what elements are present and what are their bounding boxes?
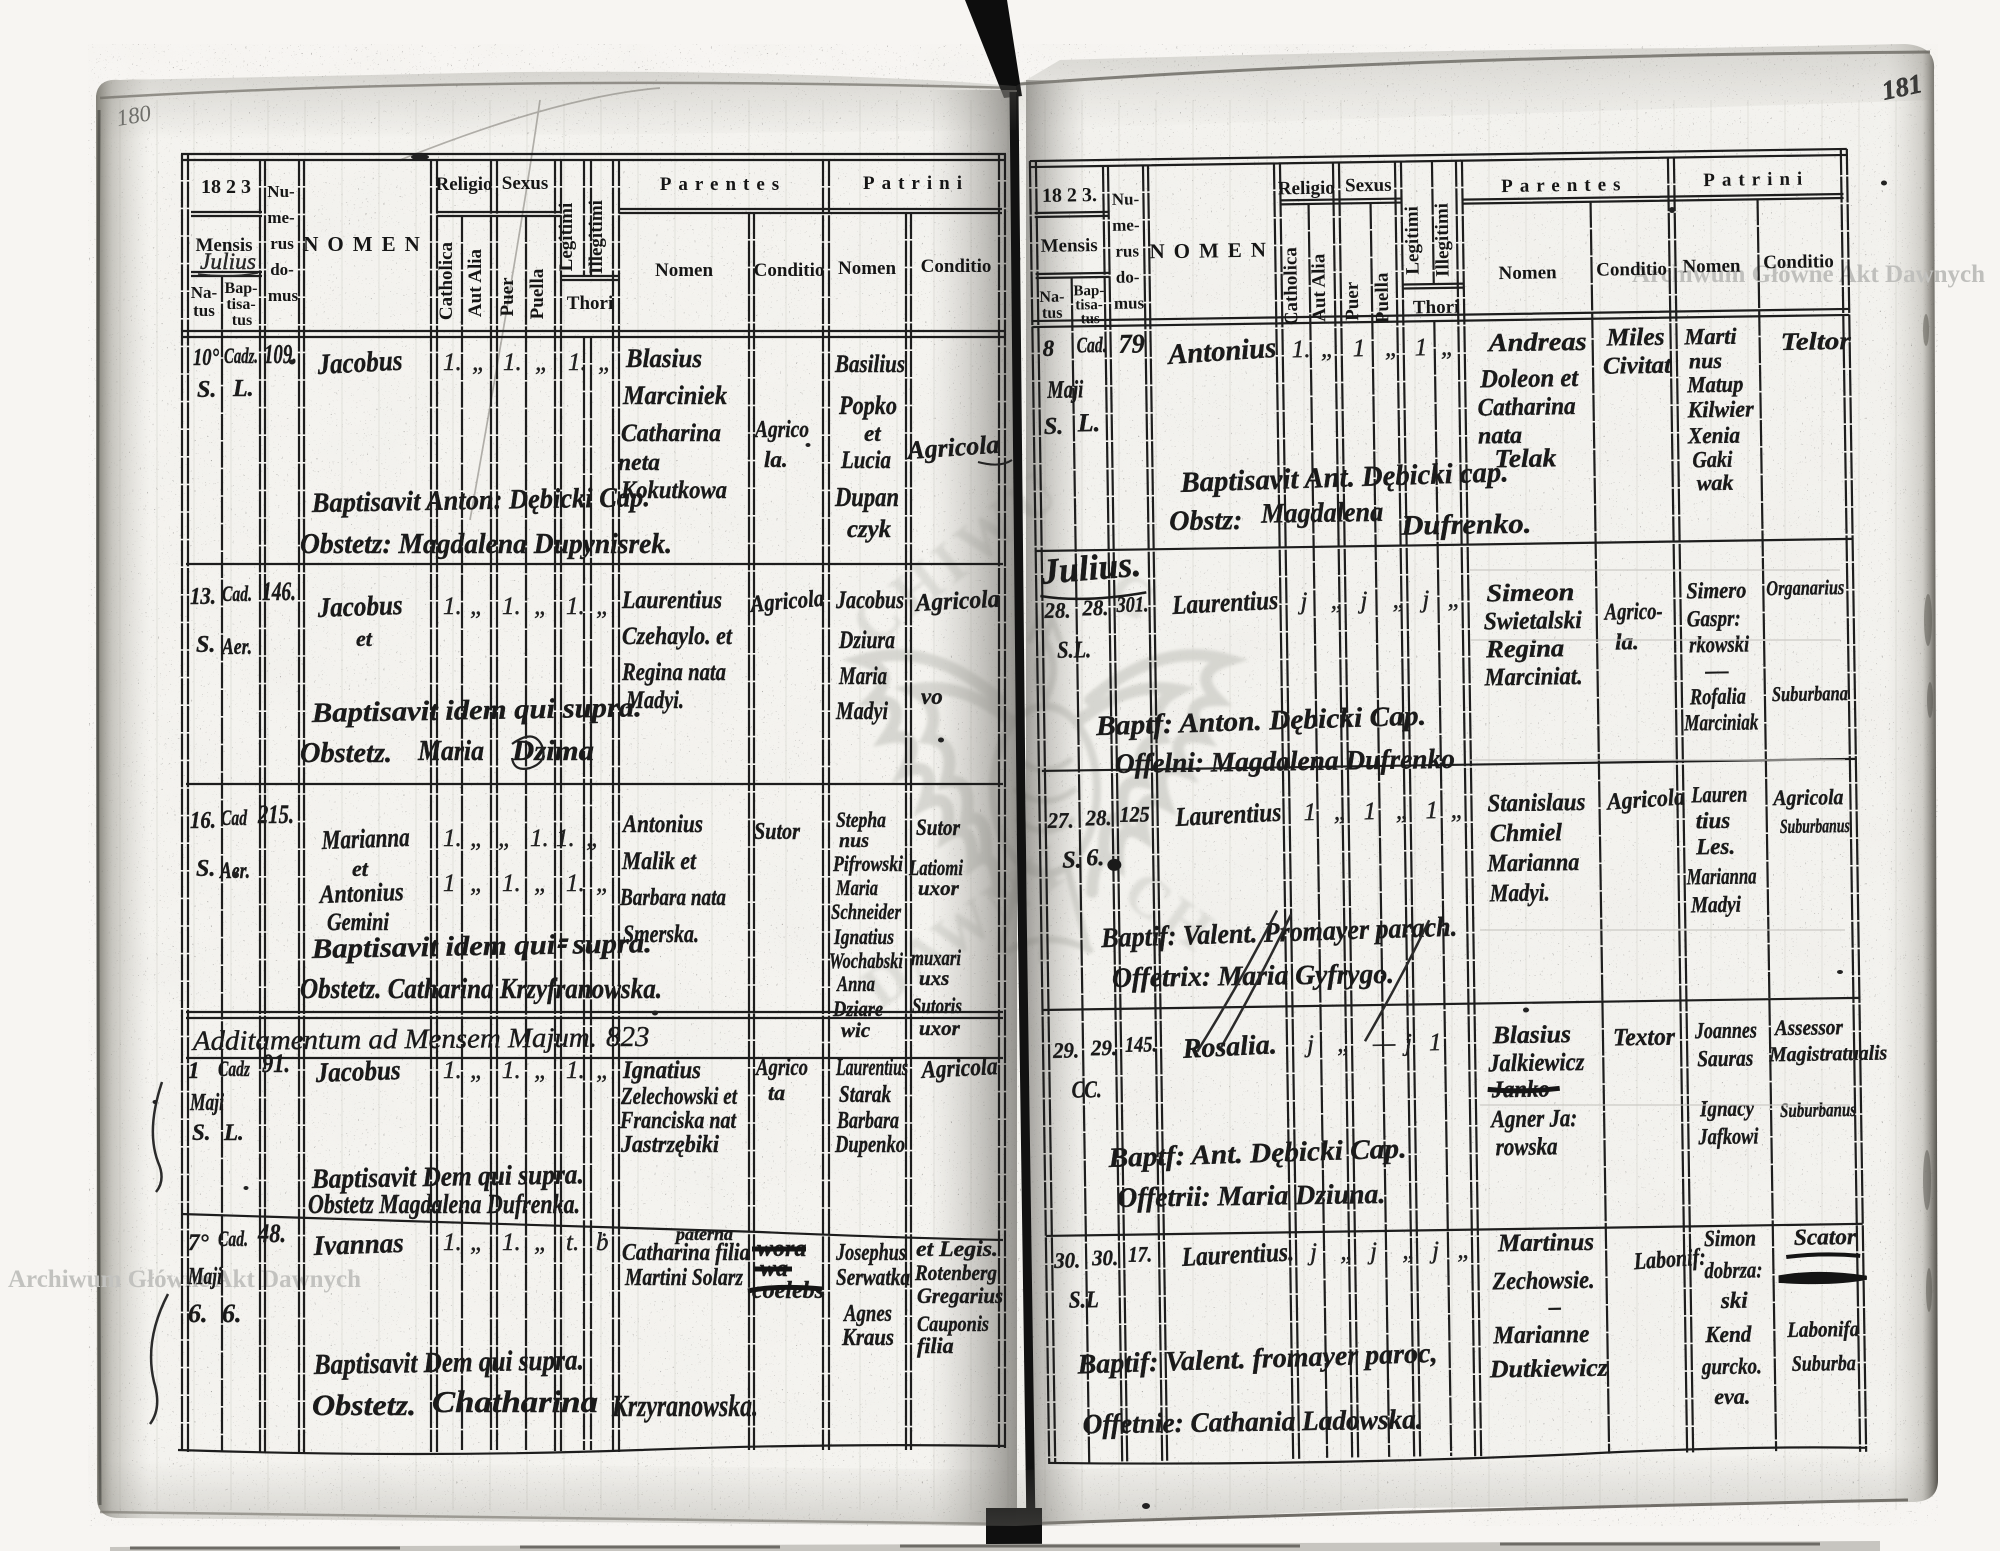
svg-text:Ignatius: Ignatius	[622, 1057, 701, 1084]
svg-text:S.L: S.L	[1069, 1287, 1099, 1313]
svg-text:Simeon: Simeon	[1486, 579, 1574, 607]
svg-text:„: „	[596, 593, 610, 620]
svg-text:301.: 301.	[1115, 591, 1148, 616]
svg-text:Nomen: Nomen	[1682, 256, 1741, 278]
svg-text:Kraus: Kraus	[841, 1325, 894, 1351]
svg-text:Jacobus: Jacobus	[835, 587, 904, 614]
svg-text:ḃ: ḃ	[596, 1229, 609, 1256]
svg-text:wic: wic	[841, 1018, 871, 1042]
svg-text:1.: 1.	[1292, 336, 1311, 363]
svg-text:Illegitimi: Illegitimi	[1432, 203, 1454, 277]
svg-text:Legitimi: Legitimi	[1402, 206, 1424, 275]
svg-text:rus: rus	[1115, 241, 1139, 260]
svg-text:Cad.: Cad.	[218, 1226, 248, 1251]
svg-text:vo: vo	[921, 684, 943, 709]
svg-text:Thori: Thori	[1413, 297, 1460, 319]
svg-text:„: „	[534, 870, 548, 897]
svg-text:S.: S.	[196, 632, 215, 658]
svg-text:Dufrenko.: Dufrenko.	[1400, 509, 1532, 542]
svg-text:„: „	[1385, 335, 1399, 362]
svg-text:79: 79	[1118, 328, 1145, 358]
svg-text:NOMEN: NOMEN	[1149, 237, 1275, 263]
svg-text:Kilwier: Kilwier	[1687, 396, 1755, 422]
svg-text:S.: S.	[1062, 847, 1082, 873]
svg-text:1.: 1.	[443, 1057, 462, 1084]
svg-text:Malik et: Malik et	[621, 848, 697, 875]
svg-text:Nomen: Nomen	[838, 258, 896, 279]
svg-text:Pifrowski: Pifrowski	[832, 851, 904, 876]
svg-text:L.: L.	[1077, 408, 1101, 437]
svg-text:Serwatka: Serwatka	[836, 1265, 910, 1291]
svg-text:neta: neta	[618, 450, 660, 476]
svg-text:tus: tus	[193, 301, 215, 320]
svg-text:Julius.: Julius.	[1038, 544, 1142, 592]
svg-text:Catharina: Catharina	[1477, 393, 1575, 421]
svg-text:Puer: Puer	[1342, 281, 1364, 321]
svg-text:„: „	[1333, 798, 1347, 825]
svg-text:Agnes: Agnes	[842, 1301, 892, 1327]
svg-text:tius: tius	[1696, 808, 1731, 834]
svg-text:48.: 48.	[257, 1219, 286, 1248]
svg-text:Ignatius: Ignatius	[833, 924, 894, 949]
svg-text:Cad.: Cad.	[1076, 332, 1106, 357]
svg-text:Joannes: Joannes	[1694, 1017, 1757, 1043]
svg-text:Kend: Kend	[1704, 1321, 1752, 1347]
svg-text:Doleon et: Doleon et	[1479, 363, 1579, 393]
svg-text:„: „	[1457, 1237, 1471, 1264]
svg-text:Gaspr:: Gaspr:	[1687, 606, 1741, 632]
svg-text:„: „	[470, 825, 484, 852]
svg-text:146.: 146.	[262, 577, 296, 606]
svg-text:nus: nus	[839, 830, 869, 852]
svg-text:Dupan: Dupan	[834, 482, 899, 512]
svg-text:„: „	[472, 349, 486, 376]
svg-text:la.: la.	[1615, 629, 1639, 654]
svg-text:Obstz:: Obstz:	[1169, 505, 1243, 537]
svg-text:S.: S.	[192, 1120, 211, 1145]
svg-text:Conditio: Conditio	[1763, 251, 1834, 273]
svg-text:Maji: Maji	[1046, 376, 1083, 404]
svg-text:16.: 16.	[190, 808, 216, 834]
svg-text:Obstetz: Magdalena Dupynisre: Obstetz: Magdalena Dupynisrek.	[300, 529, 672, 560]
svg-text:Laurentius: Laurentius	[1171, 585, 1279, 620]
svg-text:L.: L.	[232, 376, 254, 402]
svg-text:Sauras: Sauras	[1697, 1045, 1753, 1071]
svg-text:„: „	[1392, 587, 1406, 614]
svg-text:1.: 1.	[530, 825, 549, 852]
svg-text:1.: 1.	[566, 593, 585, 620]
svg-text:Catholica: Catholica	[436, 241, 457, 320]
svg-text:rkowski: rkowski	[1689, 631, 1750, 657]
svg-text:7°: 7°	[188, 1230, 210, 1255]
svg-text:nus: nus	[1689, 348, 1722, 373]
svg-text:filia: filia	[917, 1333, 954, 1358]
svg-text:Marciniek: Marciniek	[622, 381, 727, 410]
svg-text:Popko: Popko	[838, 391, 897, 420]
svg-text:Laurentius: Laurentius	[1174, 797, 1282, 832]
svg-text:Blasius: Blasius	[1492, 1021, 1571, 1049]
svg-text:Scator: Scator	[1794, 1224, 1857, 1250]
svg-text:1: 1	[1425, 797, 1438, 824]
svg-text:–: –	[1548, 1294, 1561, 1320]
svg-text:Nomen: Nomen	[1498, 262, 1557, 284]
svg-text:„: „	[1450, 797, 1464, 824]
svg-text:Marciniat.: Marciniat.	[1484, 663, 1583, 691]
svg-text:Na-: Na-	[191, 283, 218, 302]
svg-text:Agrico: Agrico	[753, 417, 809, 443]
svg-text:Regina nata: Regina nata	[621, 659, 726, 686]
svg-text:Ignacy: Ignacy	[1699, 1095, 1755, 1121]
svg-text:Baptisavit Dem qui supra.: Baptisavit Dem qui supra.	[313, 1344, 584, 1381]
svg-text:czyk: czyk	[847, 516, 891, 543]
svg-text:S.L.: S.L.	[1057, 637, 1091, 664]
svg-text:Andreas: Andreas	[1486, 327, 1587, 357]
svg-text:215.: 215.	[257, 800, 294, 829]
svg-text:„: „	[470, 1229, 484, 1256]
svg-text:Legitimi: Legitimi	[556, 203, 577, 272]
svg-text:Nu-: Nu-	[267, 182, 295, 201]
svg-text:Stanislaus: Stanislaus	[1487, 789, 1585, 817]
svg-text:Krzyranowska.: Krzyranowska.	[611, 1388, 758, 1423]
svg-text:Martini Solarz: Martini Solarz	[624, 1265, 743, 1291]
svg-text:Puella: Puella	[1372, 272, 1394, 323]
svg-text:Puer: Puer	[497, 277, 518, 317]
svg-text:„: „	[535, 349, 549, 376]
svg-text:Labonif:: Labonif:	[1632, 1244, 1706, 1275]
svg-text:Jacobus: Jacobus	[316, 345, 403, 381]
svg-text:Laurentius: Laurentius	[621, 587, 722, 614]
svg-text:Madyi: Madyi	[1690, 892, 1742, 918]
svg-text:Labonifa: Labonifa	[1786, 1316, 1859, 1342]
svg-text:Dutkiewicz: Dutkiewicz	[1489, 1355, 1609, 1384]
svg-text:Suburbanus: Suburbanus	[1780, 1099, 1856, 1122]
svg-text:Sutor: Sutor	[754, 819, 801, 845]
svg-text:Suburbanus: Suburbanus	[1780, 815, 1850, 838]
svg-text:„: „	[1402, 1237, 1416, 1264]
svg-text:Obstetz.: Obstetz.	[300, 738, 392, 769]
svg-text:6.: 6.	[222, 1299, 242, 1328]
svg-text:„: „	[598, 349, 612, 376]
svg-text:Rotenberg: Rotenberg	[914, 1260, 997, 1285]
svg-text:Conditio: Conditio	[754, 260, 825, 281]
svg-text:Sexus: Sexus	[1345, 175, 1392, 197]
svg-text:Obstetz. Catharina Krzyfrano: Obstetz. Catharina Krzyfranowska.	[300, 974, 662, 1005]
svg-text:NOMEN: NOMEN	[303, 232, 429, 256]
svg-text:1: 1	[443, 870, 456, 897]
svg-text:1.: 1.	[443, 825, 462, 852]
svg-text:„: „	[534, 593, 548, 620]
svg-text:6.: 6.	[188, 1299, 208, 1328]
svg-text:Zelechowski et: Zelechowski et	[620, 1084, 738, 1110]
svg-text:Textor: Textor	[1613, 1024, 1676, 1052]
svg-text:Na-: Na-	[1039, 289, 1064, 306]
svg-text:„: „	[1321, 336, 1335, 363]
svg-text:Swietalski: Swietalski	[1484, 607, 1582, 635]
svg-text:„: „	[498, 825, 512, 852]
svg-text:Aut Alia: Aut Alia	[465, 248, 486, 317]
svg-text:1: 1	[1353, 335, 1366, 362]
svg-text:13.: 13.	[190, 584, 216, 610]
svg-text:Agricola: Agricola	[1771, 784, 1843, 810]
svg-text:Madyi.: Madyi.	[1489, 879, 1550, 907]
svg-text:823: 823	[606, 1021, 650, 1053]
svg-text:et: et	[352, 856, 369, 881]
svg-text:„: „	[1337, 1030, 1351, 1057]
svg-text:Matup: Matup	[1686, 372, 1743, 398]
svg-text:Thori: Thori	[567, 293, 613, 314]
svg-text:Marianna: Marianna	[1486, 849, 1579, 877]
svg-text:Jastrzębiki: Jastrzębiki	[620, 1132, 719, 1158]
svg-text:Mensis: Mensis	[1041, 235, 1098, 257]
svg-text:1: 1	[188, 1058, 200, 1083]
svg-text:Suburbana: Suburbana	[1772, 681, 1848, 706]
svg-text:1.: 1.	[502, 1057, 521, 1084]
svg-text:10°: 10°	[193, 345, 219, 371]
svg-text:Simero: Simero	[1686, 577, 1746, 603]
svg-text:Magdalena: Magdalena	[1260, 497, 1383, 530]
svg-text:Patrini: Patrini	[863, 173, 969, 194]
svg-text:Antonius: Antonius	[621, 811, 703, 838]
svg-text:Agricola: Agricola	[913, 586, 1000, 617]
svg-text:—: —	[1704, 658, 1728, 683]
svg-text:et: et	[356, 626, 373, 651]
svg-text:6.: 6.	[1086, 845, 1104, 871]
svg-text:1.: 1.	[502, 870, 521, 897]
svg-text:Bap-: Bap-	[225, 280, 258, 297]
svg-text:Offelni: Magdalena Dufrenko: Offelni: Magdalena Dufrenko	[1115, 744, 1455, 780]
svg-text:eva.: eva.	[1714, 1384, 1750, 1410]
svg-text:1.: 1.	[443, 1229, 462, 1256]
svg-text:Maji: Maji	[189, 1090, 224, 1116]
svg-text:„: „	[470, 593, 484, 620]
svg-text:Maria: Maria	[417, 736, 484, 767]
svg-text:Chmiel: Chmiel	[1490, 819, 1562, 847]
svg-text:et: et	[864, 421, 881, 446]
svg-text:1.: 1.	[568, 349, 587, 376]
svg-text:Ivannas: Ivannas	[312, 1228, 404, 1262]
svg-text:Maria: Maria	[838, 663, 887, 690]
svg-text:1.: 1.	[566, 1057, 585, 1084]
svg-text:Dzima: Dzima	[511, 735, 594, 767]
svg-text:Catharina: Catharina	[621, 420, 721, 447]
svg-text:Magistratualis: Magistratualis	[1768, 1040, 1887, 1066]
svg-text:Madyi: Madyi	[835, 698, 888, 725]
svg-text:Puella: Puella	[527, 268, 548, 319]
svg-text:Simon: Simon	[1704, 1225, 1756, 1251]
svg-text:1: 1	[1429, 1029, 1442, 1056]
svg-text:Marianna: Marianna	[1686, 863, 1757, 889]
svg-text:S.: S.	[196, 856, 215, 882]
svg-text:Jacobus: Jacobus	[316, 590, 403, 624]
svg-text:Jacobus: Jacobus	[314, 1055, 401, 1089]
svg-text:Dupenko: Dupenko	[834, 1132, 905, 1158]
svg-text:Basilius: Basilius	[834, 351, 905, 378]
svg-text:ta: ta	[768, 1080, 785, 1105]
svg-text:Aer.: Aer.	[220, 634, 252, 659]
svg-text:do-: do-	[270, 260, 294, 279]
svg-text:tus: tus	[1081, 311, 1101, 327]
svg-text:Agner Ja:: Agner Ja:	[1489, 1105, 1577, 1133]
svg-text:Laurentius: Laurentius	[835, 1055, 908, 1081]
svg-text:Barbara: Barbara	[836, 1108, 899, 1134]
svg-text:Maji: Maji	[187, 1264, 222, 1290]
svg-text:Baptisavit idem qui⹀ supra.: Baptisavit idem qui⹀ supra.	[310, 928, 652, 965]
svg-text:Marciniak: Marciniak	[1683, 709, 1758, 735]
svg-text:Wochabski: Wochabski	[829, 948, 904, 973]
svg-text:Barbara nata: Barbara nata	[619, 885, 726, 911]
svg-text:Czehaylo. et: Czehaylo. et	[622, 623, 733, 650]
svg-text:Additamentum ad Mensem Maju: Additamentum ad Mensem Majum.	[191, 1022, 597, 1057]
svg-text:28.: 28.	[1085, 805, 1112, 830]
svg-text:Marti: Marti	[1683, 324, 1737, 350]
svg-text:Martinus: Martinus	[1497, 1229, 1594, 1257]
svg-text:28.: 28.	[1043, 598, 1070, 623]
svg-text:do-: do-	[1116, 267, 1140, 286]
svg-text:Josephus: Josephus	[835, 1240, 906, 1266]
svg-text:30.: 30.	[1091, 1245, 1118, 1270]
svg-text:S.: S.	[1044, 414, 1064, 440]
svg-text:Catharina filia: Catharina filia	[622, 1240, 750, 1266]
svg-text:Cadz.: Cadz.	[224, 343, 258, 368]
svg-text:Baptisavit idem qui supra.: Baptisavit idem qui supra.	[310, 692, 642, 729]
svg-text:Aut Alia: Aut Alia	[1308, 253, 1330, 322]
svg-text:„: „	[596, 1057, 610, 1084]
svg-text:uxs: uxs	[919, 966, 949, 990]
svg-text:Jalkiewicz: Jalkiewicz	[1487, 1049, 1585, 1077]
svg-text:Gaki: Gaki	[1692, 447, 1733, 473]
svg-text:125: 125	[1119, 801, 1149, 826]
svg-text:uxor: uxor	[918, 876, 960, 900]
svg-text:S.: S.	[197, 377, 216, 403]
svg-text:Religio: Religio	[1278, 178, 1335, 200]
svg-text:1.: 1.	[503, 349, 522, 376]
svg-text:Cad: Cad	[221, 805, 248, 830]
svg-text:„: „	[586, 825, 600, 852]
svg-text:1.: 1.	[566, 870, 585, 897]
svg-text:30.: 30.	[1053, 1247, 1080, 1272]
svg-text:t.: t.	[566, 1229, 579, 1256]
svg-text:Offetnie: Cathania Ladowska.: Offetnie: Cathania Ladowska.	[1082, 1404, 1422, 1440]
svg-text:„: „	[1441, 334, 1455, 361]
svg-text:Blasius: Blasius	[625, 344, 702, 373]
svg-text:Miles: Miles	[1605, 324, 1664, 352]
svg-text:Sutoris: Sutoris	[912, 993, 962, 1018]
svg-text:Suburba: Suburba	[1792, 1350, 1856, 1376]
svg-text:Lauren: Lauren	[1690, 781, 1747, 807]
svg-text:tus: tus	[1042, 305, 1063, 322]
svg-text:1.: 1.	[502, 1229, 521, 1256]
svg-text:Laurentius.: Laurentius.	[1180, 1236, 1294, 1272]
svg-text:„: „	[1395, 798, 1409, 825]
svg-text:27.: 27.	[1047, 807, 1074, 832]
svg-text:Maria: Maria	[835, 875, 878, 900]
svg-text:la.: la.	[764, 447, 788, 472]
svg-text:Sexus: Sexus	[502, 173, 548, 194]
svg-text:29.: 29.	[1052, 1037, 1079, 1062]
svg-text:1.: 1.	[443, 349, 462, 376]
svg-text:29.: 29.	[1090, 1035, 1117, 1060]
svg-text:Offetrii: Maria Dziuna.: Offetrii: Maria Dziuna.	[1117, 1179, 1385, 1214]
svg-text:Rosalia.: Rosalia.	[1181, 1029, 1277, 1065]
svg-text:Stepha: Stepha	[836, 807, 886, 832]
svg-text:Conditio: Conditio	[1596, 259, 1667, 281]
svg-text:Marianne: Marianne	[1492, 1321, 1589, 1349]
svg-text:Catholica: Catholica	[1280, 247, 1302, 326]
svg-text:„: „	[1330, 587, 1344, 614]
svg-text:Baptisavit Anton: Dębicki Cap.: Baptisavit Anton: Dębicki Cap.	[311, 482, 650, 519]
svg-text:Anna: Anna	[835, 971, 875, 996]
svg-text:Conditio: Conditio	[921, 256, 992, 277]
svg-text:Nu-: Nu-	[1112, 189, 1140, 208]
svg-text:Gregarius: Gregarius	[917, 1283, 1003, 1308]
svg-text:et Legis.: et Legis.	[916, 1236, 998, 1261]
svg-text:Dziura: Dziura	[838, 627, 895, 654]
svg-text:Nomen: Nomen	[655, 260, 713, 281]
svg-text:1.: 1.	[556, 825, 575, 852]
svg-text:rowska: rowska	[1495, 1133, 1557, 1161]
svg-text:Archiwum Główne Akt Dawnych: Archiwum Główne Akt Dawnych	[8, 1266, 361, 1293]
svg-text:Antonius: Antonius	[317, 877, 404, 909]
svg-text:Lucia: Lucia	[840, 447, 891, 474]
svg-text:rus: rus	[270, 234, 294, 253]
svg-text:me-: me-	[267, 208, 295, 227]
svg-text:Schneider: Schneider	[831, 899, 901, 924]
svg-text:„: „	[470, 1057, 484, 1084]
svg-text:28.: 28.	[1081, 595, 1108, 620]
svg-text:„: „	[470, 870, 484, 897]
svg-text:Cad.: Cad.	[222, 581, 252, 606]
svg-text:Zechowsie.: Zechowsie.	[1491, 1267, 1594, 1296]
svg-text:Teltor: Teltor	[1780, 328, 1851, 356]
svg-text:18 2 3.: 18 2 3.	[1042, 184, 1097, 207]
svg-text:Agrico-: Agrico-	[1603, 599, 1663, 626]
svg-text:Assessor: Assessor	[1773, 1014, 1843, 1040]
svg-text:Les.: Les.	[1695, 834, 1735, 860]
svg-text:Franciska nat: Franciska nat	[619, 1108, 737, 1134]
svg-text:„: „	[1340, 1238, 1354, 1265]
svg-text:8: 8	[1042, 336, 1054, 361]
svg-text:18 2 3: 18 2 3	[201, 176, 251, 198]
svg-text:Illegitimi: Illegitimi	[586, 200, 607, 274]
svg-text:Julius: Julius	[200, 249, 256, 274]
svg-text:Obstetz Magdalena Dufrenka.: Obstetz Magdalena Dufrenka.	[308, 1189, 580, 1219]
svg-text:mus: mus	[268, 286, 299, 305]
svg-text:„: „	[534, 1057, 548, 1084]
svg-text:91.: 91.	[262, 1049, 290, 1078]
svg-text:1.: 1.	[443, 593, 462, 620]
svg-text:1: 1	[1415, 334, 1428, 361]
svg-text:—: —	[1372, 1030, 1396, 1057]
svg-text:mus: mus	[1114, 293, 1145, 312]
svg-text:Xenia: Xenia	[1687, 423, 1740, 449]
svg-text:gurcko.: gurcko.	[1701, 1353, 1762, 1379]
svg-text:Cadz: Cadz	[218, 1056, 250, 1081]
svg-text:tus: tus	[232, 312, 252, 329]
svg-text:uxor: uxor	[919, 1016, 961, 1040]
svg-text:Sutor: Sutor	[916, 815, 961, 840]
svg-text:Jafkowi: Jafkowi	[1697, 1123, 1759, 1149]
svg-text:„: „	[534, 1229, 548, 1256]
svg-text:CC.: CC.	[1071, 1077, 1101, 1103]
svg-text:Marianna: Marianna	[320, 822, 410, 855]
svg-text:Parentes: Parentes	[660, 174, 786, 195]
svg-text:Parentes: Parentes	[1501, 174, 1628, 197]
svg-text:1: 1	[1303, 799, 1316, 826]
svg-text:Agricola: Agricola	[1604, 784, 1685, 815]
svg-text:145.: 145.	[1125, 1031, 1157, 1056]
svg-text:Aer.: Aer.	[218, 858, 250, 883]
svg-text:dobrza:: dobrza:	[1704, 1257, 1762, 1283]
